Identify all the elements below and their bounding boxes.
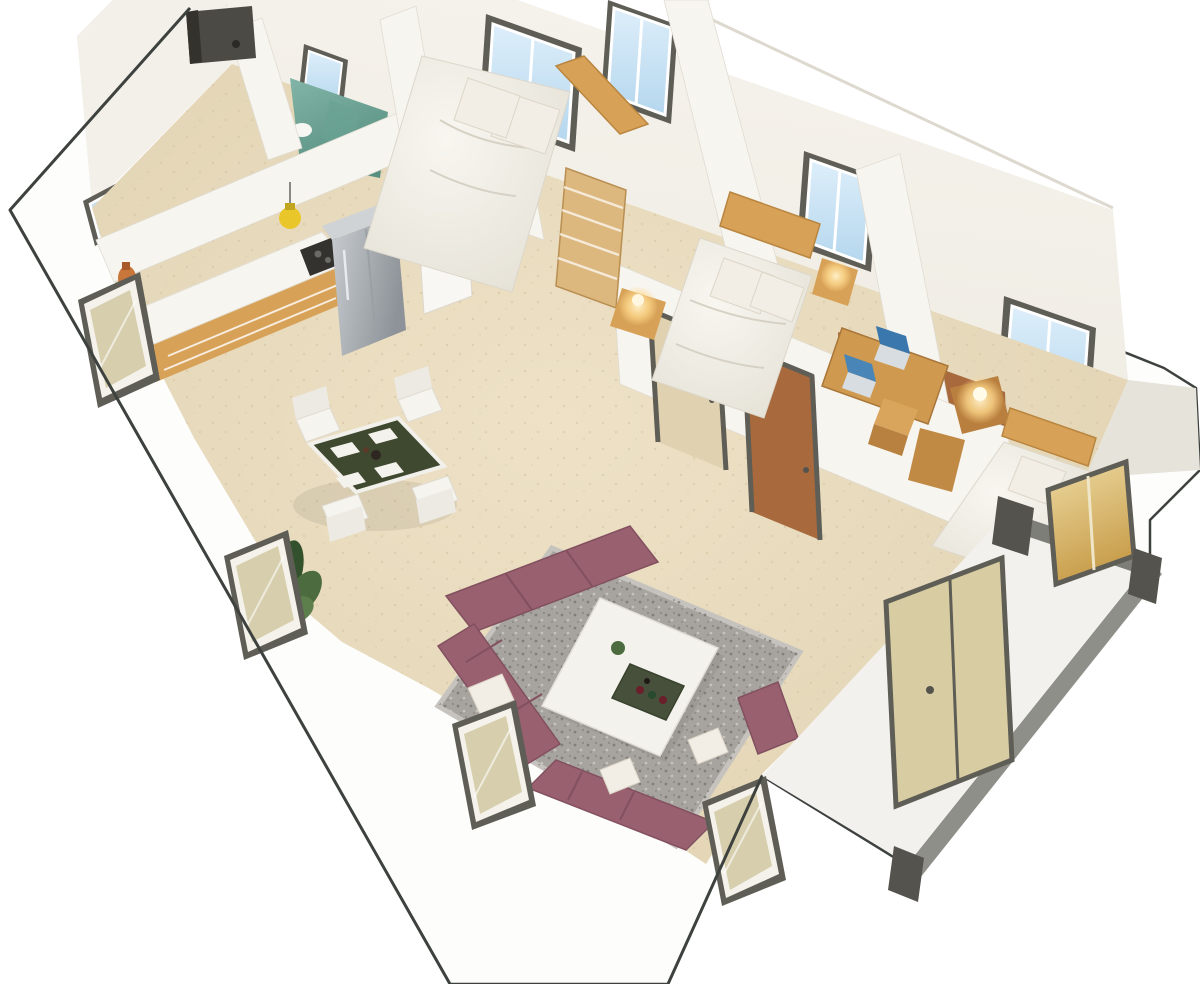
floor-plan-figure: 3D isometric cutaway floor plan render o… — [0, 0, 1200, 984]
floor-plan-canvas — [0, 0, 1200, 984]
corner-frame-beam — [186, 6, 256, 64]
table-plant — [611, 641, 625, 655]
porch-door — [886, 558, 1012, 806]
porch-post — [1128, 548, 1162, 604]
lamp-glow-2 — [820, 260, 852, 292]
ladder-shelf — [556, 168, 626, 308]
